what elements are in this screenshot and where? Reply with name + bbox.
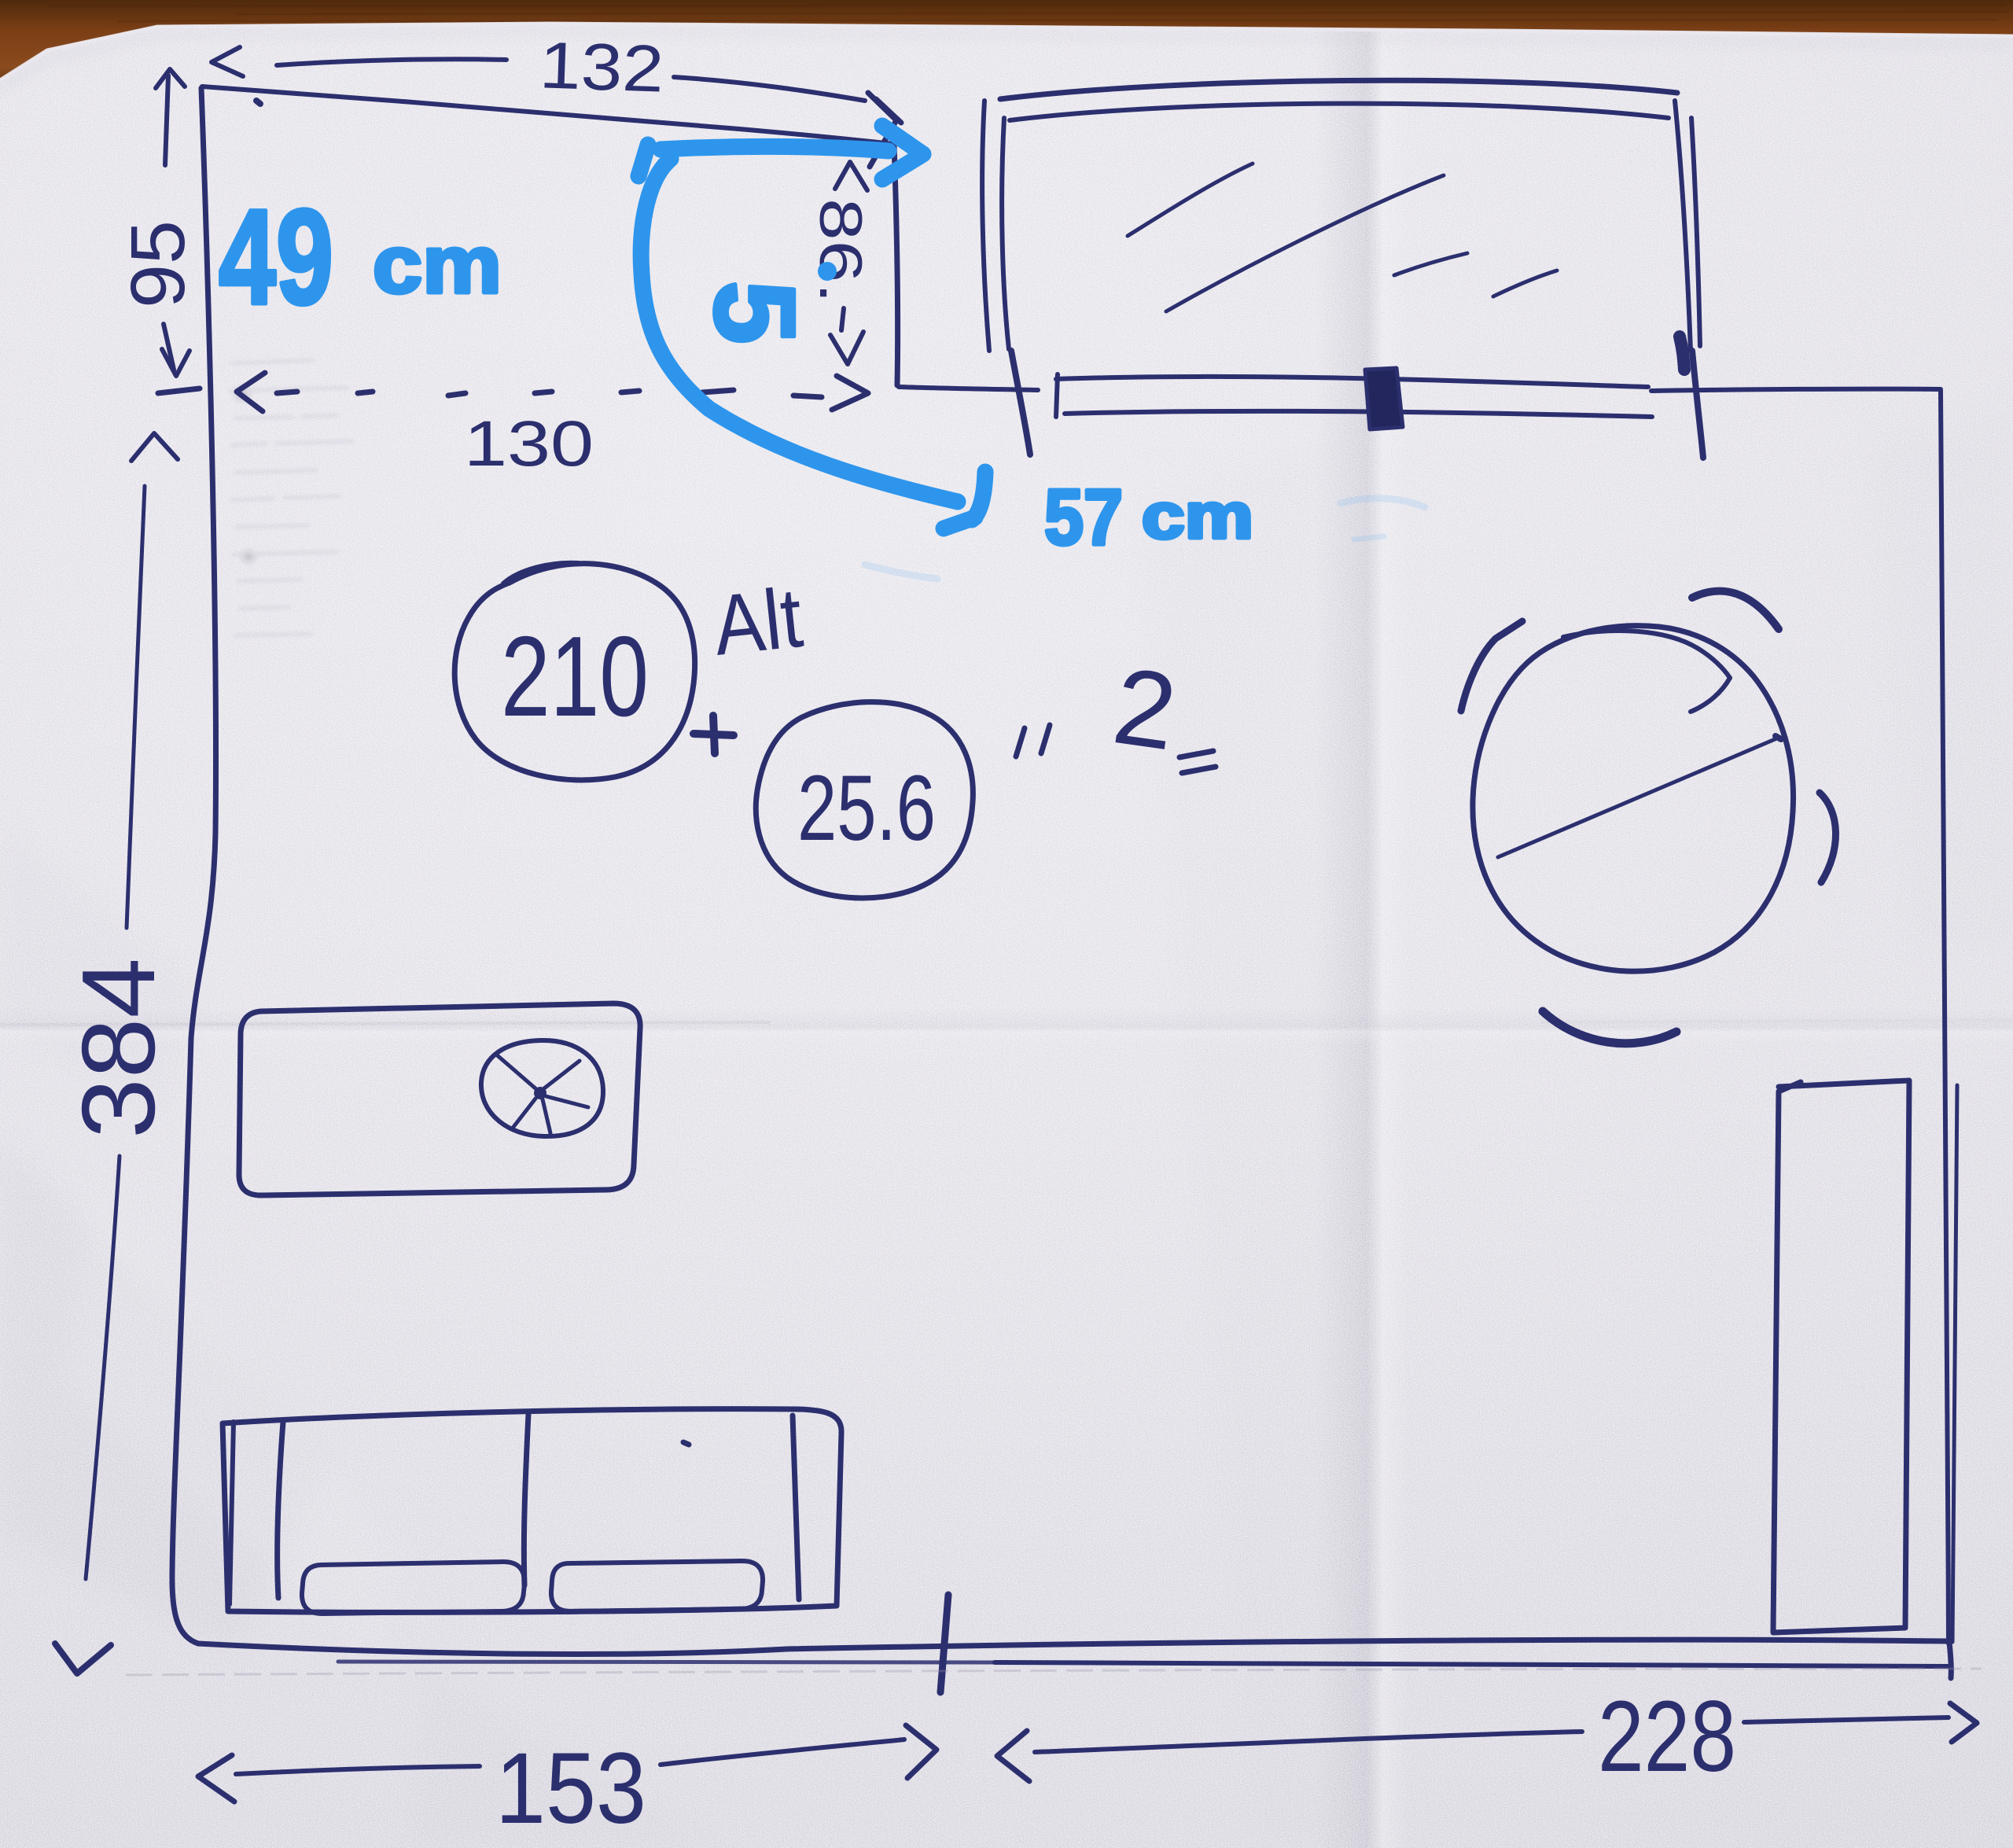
svg-text:384: 384 — [61, 958, 176, 1139]
svg-text:210: 210 — [501, 613, 649, 740]
svg-text:95: 95 — [115, 220, 201, 308]
svg-text:Alt: Alt — [709, 569, 807, 673]
svg-text:130: 130 — [464, 408, 594, 480]
svg-text:5: 5 — [691, 281, 819, 344]
svg-text:cm: cm — [373, 219, 502, 311]
svg-text:25.6: 25.6 — [797, 757, 936, 860]
svg-text:49: 49 — [219, 182, 333, 333]
svg-text:228: 228 — [1598, 1681, 1736, 1793]
svg-text:153: 153 — [495, 1732, 646, 1845]
svg-text:132: 132 — [539, 28, 665, 105]
svg-text:cm: cm — [1142, 480, 1253, 552]
svg-text:57: 57 — [1044, 473, 1123, 561]
